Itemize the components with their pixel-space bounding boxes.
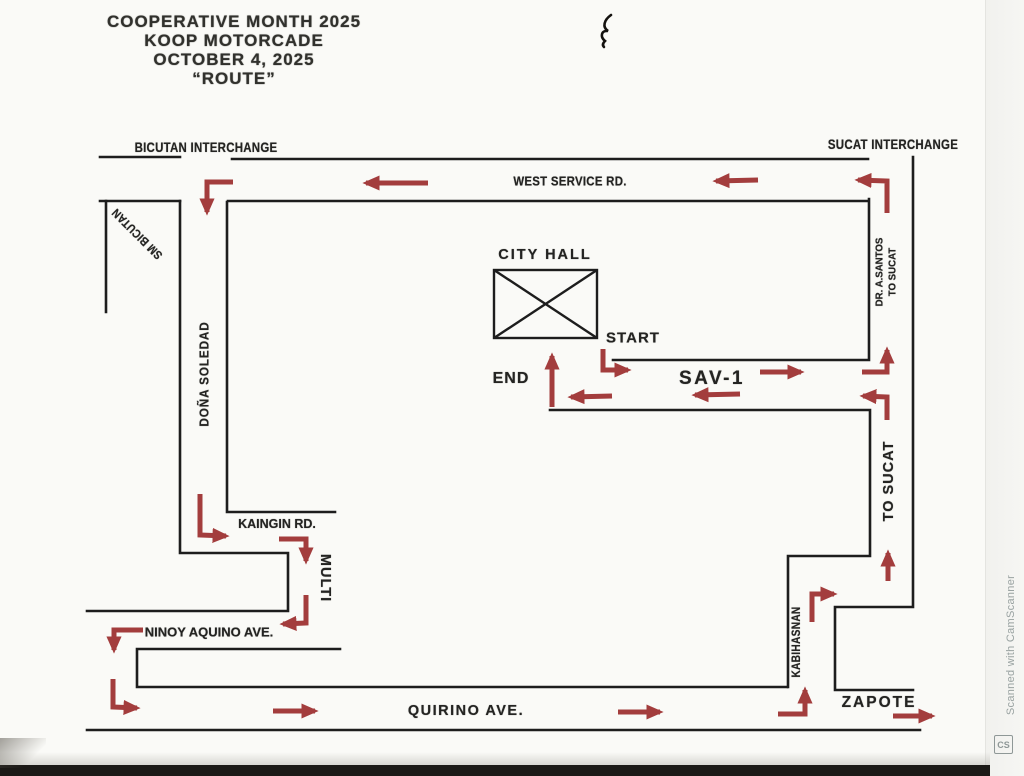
arrow-kabihasnan-jog-right — [812, 594, 834, 622]
label-start: START — [606, 330, 660, 347]
label-dona-soledad: DOÑA SOLEDAD — [197, 321, 212, 426]
label-kabihasnan: KABIHASNAN — [789, 606, 803, 677]
arrow-west-service-2 — [716, 180, 758, 181]
camscanner-watermark: Scanned with CamScanner — [1005, 575, 1017, 715]
map-title: COOPERATIVE MONTH 2025 KOOP MOTORCADE OC… — [58, 12, 410, 88]
road-dona-soledad-west-edge — [87, 201, 288, 611]
scanned-route-map-page: COOPERATIVE MONTH 2025 KOOP MOTORCADE OC… — [0, 0, 1024, 776]
label-zapote: ZAPOTE — [842, 694, 917, 712]
arrow-turn-up-kabihasnan — [778, 690, 805, 714]
arrow-sav1-return-2 — [571, 396, 612, 397]
camscanner-logo-icon: CS — [994, 735, 1013, 754]
arrow-sav1-return-1 — [695, 394, 740, 395]
label-to-sucat: TO SUCAT — [881, 441, 897, 522]
scan-corner-shadow — [0, 738, 46, 768]
title-line-3: OCTOBER 4, 2025 — [58, 50, 410, 69]
label-dr-a-santos-line2: TO SUCAT — [886, 238, 899, 307]
label-sucat-interchange: SUCAT INTERCHANGE — [828, 136, 958, 152]
label-multi: MULTI — [317, 554, 333, 602]
label-end: END — [493, 370, 530, 388]
arrow-turn-onto-return-lane — [863, 396, 887, 420]
label-city-hall: CITY HALL — [498, 247, 591, 263]
label-bicutan-interchange: BICUTAN INTERCHANGE — [135, 139, 278, 155]
title-line-1: COOPERATIVE MONTH 2025 — [58, 12, 410, 31]
title-line-4: “ROUTE” — [58, 69, 410, 88]
road-sav1-south-edge — [550, 410, 870, 687]
pen-squiggle-mark — [602, 15, 611, 47]
label-dr-a-santos: DR. A.SANTOS TO SUCAT — [873, 238, 898, 307]
arrow-turn-down-dona-soledad — [207, 182, 233, 212]
label-west-service-rd: WEST SERVICE RD. — [513, 174, 626, 189]
arrow-turn-onto-west-service — [858, 180, 887, 213]
label-ninoy-aquino-ave: NINOY AQUINO AVE. — [145, 625, 274, 640]
scan-bottom-edge — [0, 765, 990, 776]
arrow-ninoy-turn-south — [114, 630, 143, 650]
arrow-multi-to-ninoy — [283, 595, 306, 624]
arrow-dona-soledad-to-kaingin — [200, 494, 226, 536]
label-sav1: SAV-1 — [679, 368, 745, 390]
label-kaingin-rd: KAINGIN RD. — [238, 517, 316, 531]
arrow-onto-quirino — [113, 679, 137, 708]
scan-bottom-smudge — [0, 752, 990, 765]
city-hall-block — [494, 270, 597, 338]
road-ninoy-quirino-block — [137, 649, 787, 687]
title-line-2: KOOP MOTORCADE — [58, 31, 410, 50]
label-quirino-ave: QUIRINO AVE. — [408, 703, 524, 719]
route-map-canvas — [0, 0, 1024, 776]
arrow-kaingin-to-multi — [279, 539, 306, 561]
label-dr-a-santos-line1: DR. A.SANTOS — [873, 238, 886, 307]
road-dona-soledad-east-edge — [227, 202, 335, 512]
